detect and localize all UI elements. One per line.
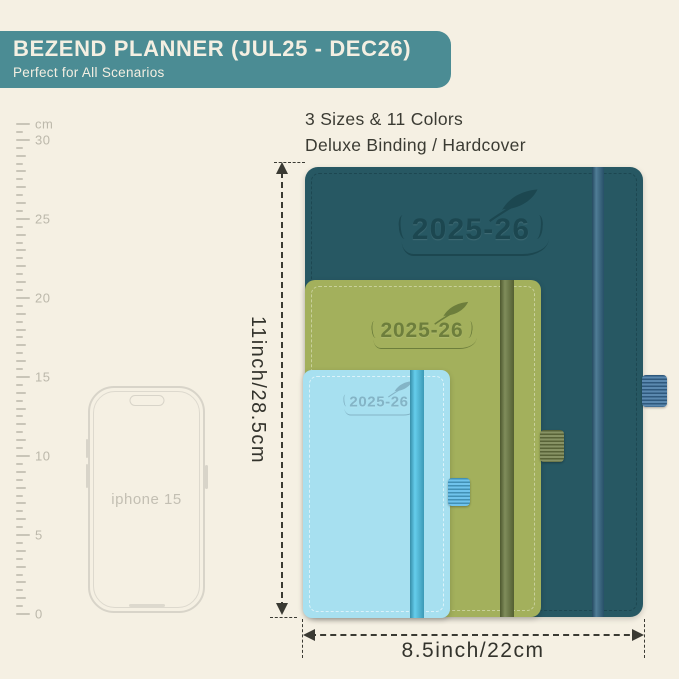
iphone-label: iphone 15 <box>90 491 203 508</box>
feather-icon <box>484 188 541 223</box>
ruler-tick <box>16 210 23 212</box>
ruler-tick <box>16 329 26 331</box>
ruler-tick <box>16 242 23 244</box>
pen-loop <box>642 375 667 407</box>
arrow-down-icon <box>276 603 288 615</box>
planner-small: 2025-26 <box>303 370 450 618</box>
ruler-tick <box>16 613 30 615</box>
ruler-tick <box>16 376 30 378</box>
ruler-tick <box>16 281 26 283</box>
elastic-band <box>500 280 514 617</box>
ruler-tick <box>16 463 23 465</box>
height-reference-line-bottom <box>270 617 297 618</box>
ruler-tick <box>16 194 23 196</box>
ruler-tick <box>16 479 23 481</box>
ruler-tick <box>16 581 26 583</box>
ruler-tick <box>16 131 23 133</box>
ruler-tick <box>16 487 26 489</box>
ruler-tick <box>16 147 23 149</box>
banner-subtitle: Perfect for All Scenarios <box>13 65 451 80</box>
ruler-number: 25 <box>35 211 50 226</box>
elastic-band <box>592 167 604 617</box>
ruler-tick <box>16 321 23 323</box>
ruler-tick <box>16 313 26 315</box>
ruler-tick <box>16 360 26 362</box>
ruler-tick <box>16 139 30 141</box>
side-button <box>205 465 208 489</box>
banner-title: BEZEND PLANNER (JUL25 - DEC26) <box>13 36 451 62</box>
year-emboss: 2025-26 <box>381 319 464 343</box>
ruler-tick <box>16 534 30 536</box>
ruler-tick <box>16 305 23 307</box>
ruler-number: 5 <box>35 528 43 543</box>
dynamic-island <box>129 395 164 406</box>
emboss-arc-left <box>343 394 349 406</box>
ruler-tick <box>16 336 23 338</box>
arrow-left-icon <box>303 629 315 641</box>
ruler: cm302520151050 <box>16 123 86 623</box>
ruler-tick <box>16 518 26 520</box>
ruler-tick <box>16 178 23 180</box>
emboss-arc-left <box>371 320 379 337</box>
ruler-tick <box>16 265 26 267</box>
ruler-tick <box>16 574 23 576</box>
arrow-right-icon <box>632 629 644 641</box>
ruler-tick <box>16 123 30 125</box>
home-indicator <box>129 604 165 607</box>
height-dimension-label: 11inch/28.5cm <box>246 316 269 464</box>
feature-lines: 3 Sizes & 11 Colors Deluxe Binding / Har… <box>305 106 526 158</box>
arrow-up-icon <box>276 162 288 174</box>
ruler-tick <box>16 352 23 354</box>
ruler-tick <box>16 392 26 394</box>
ruler-tick <box>16 368 23 370</box>
ruler-tick <box>16 289 23 291</box>
ruler-tick <box>16 542 23 544</box>
ruler-tick <box>16 471 26 473</box>
pen-loop <box>448 478 470 506</box>
ruler-tick <box>16 408 26 410</box>
ruler-number: 0 <box>35 607 43 622</box>
ruler-tick <box>16 400 23 402</box>
ruler-tick <box>16 186 26 188</box>
ruler-tick <box>16 344 26 346</box>
ruler-tick <box>16 155 26 157</box>
ruler-tick <box>16 439 26 441</box>
width-reference-line-right <box>644 619 645 658</box>
iphone-outline: iphone 15 <box>88 386 205 613</box>
ruler-tick <box>16 502 26 504</box>
pen-loop <box>540 430 564 462</box>
ruler-number: 15 <box>35 369 50 384</box>
year-emboss: 2025-26 <box>349 394 408 411</box>
ruler-tick <box>16 526 23 528</box>
ruler-tick <box>16 423 26 425</box>
ruler-unit-label: cm <box>35 117 53 132</box>
product-image: BEZEND PLANNER (JUL25 - DEC26) Perfect f… <box>0 0 679 679</box>
side-button <box>86 464 89 488</box>
ruler-tick <box>16 170 26 172</box>
ruler-tick <box>16 202 26 204</box>
width-dimension-label: 8.5inch/22cm <box>402 639 545 663</box>
ruler-tick <box>16 297 30 299</box>
ruler-tick <box>16 558 23 560</box>
ruler-tick <box>16 597 26 599</box>
ruler-tick <box>16 431 23 433</box>
side-button <box>86 439 89 458</box>
feature-line-binding: Deluxe Binding / Hardcover <box>305 132 526 158</box>
emboss-underline <box>344 407 418 416</box>
height-dimension-line <box>281 172 283 608</box>
ruler-tick <box>16 605 23 607</box>
ruler-tick <box>16 273 23 275</box>
width-dimension-line <box>310 634 640 636</box>
ruler-tick <box>16 226 23 228</box>
emboss-underline <box>373 338 476 350</box>
ruler-tick <box>16 566 26 568</box>
feather-icon <box>431 301 471 325</box>
ruler-tick <box>16 510 23 512</box>
ruler-tick <box>16 384 23 386</box>
ruler-tick <box>16 550 26 552</box>
ruler-number: 10 <box>35 449 50 464</box>
emboss-underline <box>401 239 548 256</box>
ruler-number: 30 <box>35 132 50 147</box>
elastic-band <box>410 370 424 618</box>
ruler-tick <box>16 415 23 417</box>
ruler-tick <box>16 234 26 236</box>
ruler-tick <box>16 163 23 165</box>
ruler-tick <box>16 447 23 449</box>
ruler-tick <box>16 589 23 591</box>
feature-line-sizes: 3 Sizes & 11 Colors <box>305 106 526 132</box>
ruler-tick <box>16 455 30 457</box>
emboss-arc-left <box>398 215 410 240</box>
ruler-tick <box>16 495 23 497</box>
ruler-tick <box>16 257 23 259</box>
ruler-tick <box>16 249 26 251</box>
year-emboss: 2025-26 <box>412 213 531 247</box>
ruler-tick <box>16 218 30 220</box>
ruler-number: 20 <box>35 290 50 305</box>
banner: BEZEND PLANNER (JUL25 - DEC26) Perfect f… <box>0 31 451 88</box>
